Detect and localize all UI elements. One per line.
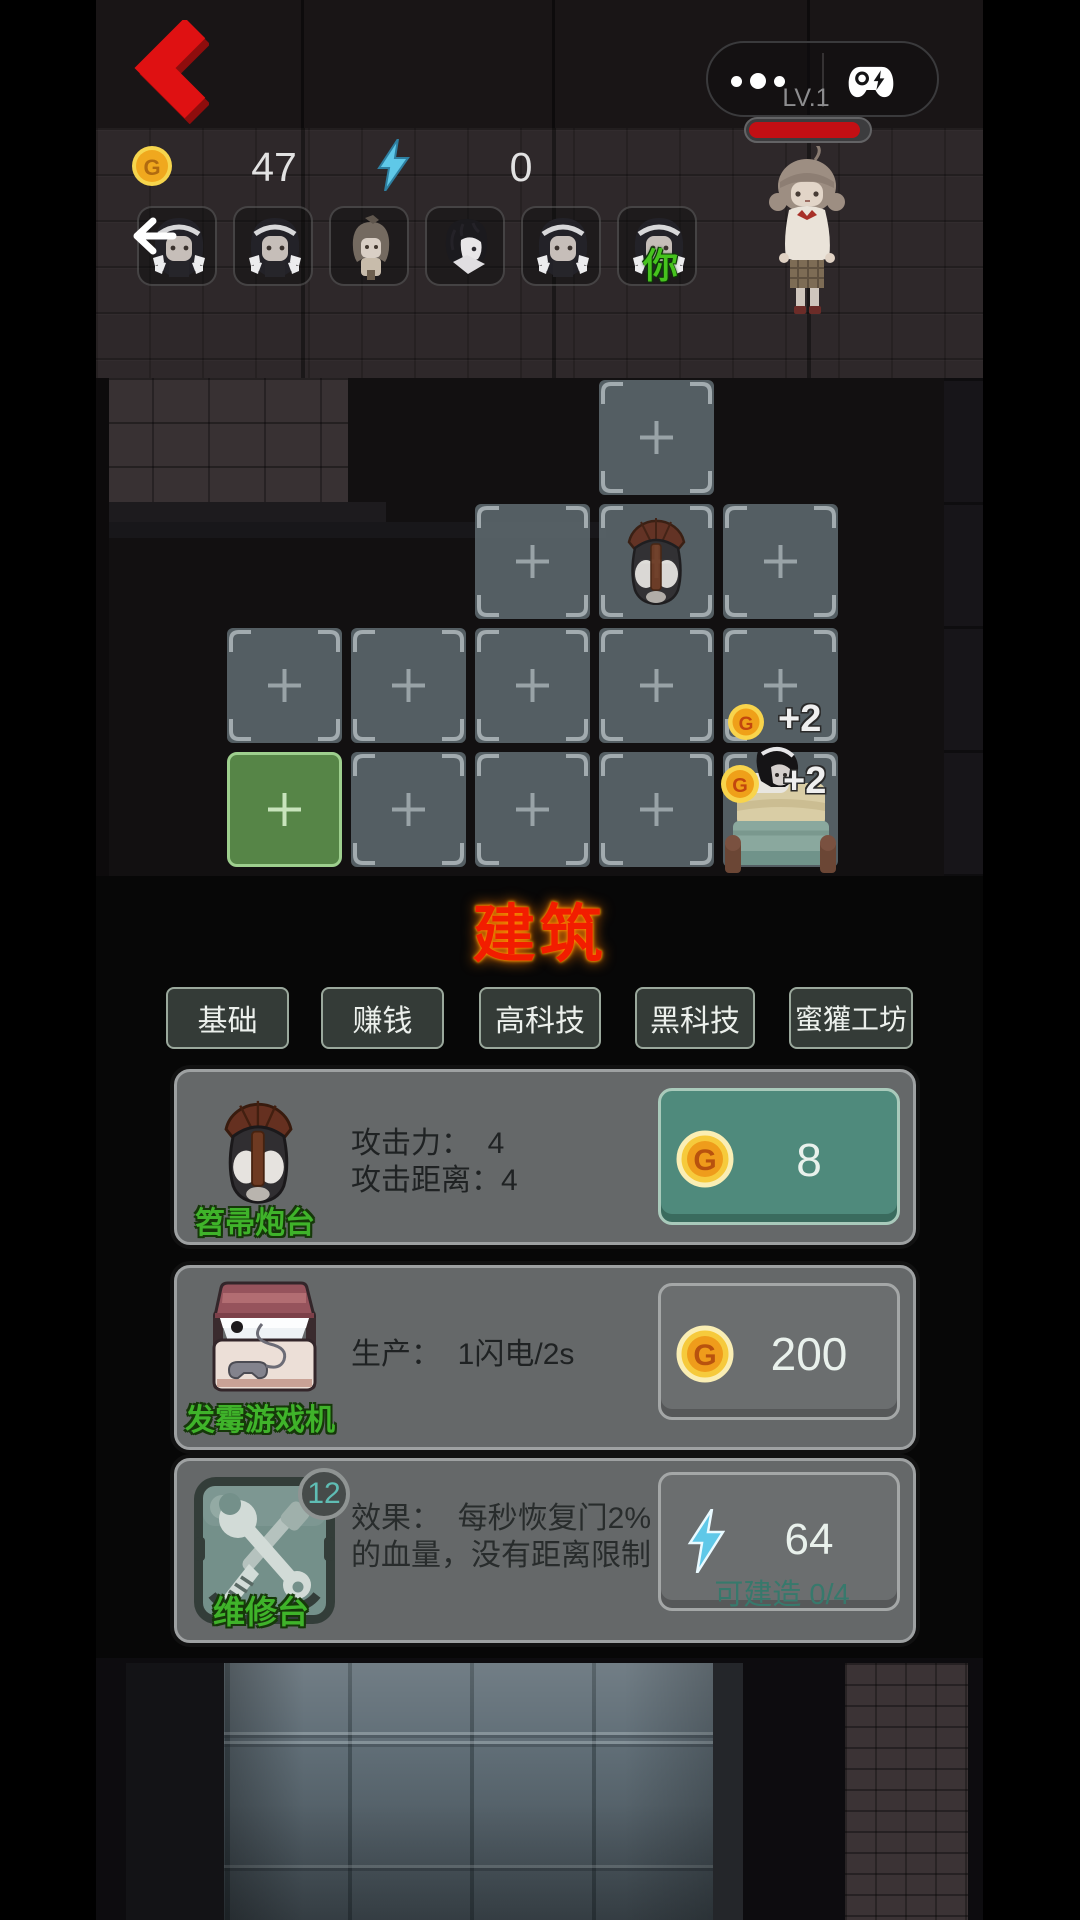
svg-text:G: G <box>739 714 754 735</box>
svg-text:G: G <box>732 775 748 797</box>
svg-text:G: G <box>693 1339 716 1372</box>
svg-text:G: G <box>693 1144 716 1177</box>
svg-text:G: G <box>143 155 160 180</box>
